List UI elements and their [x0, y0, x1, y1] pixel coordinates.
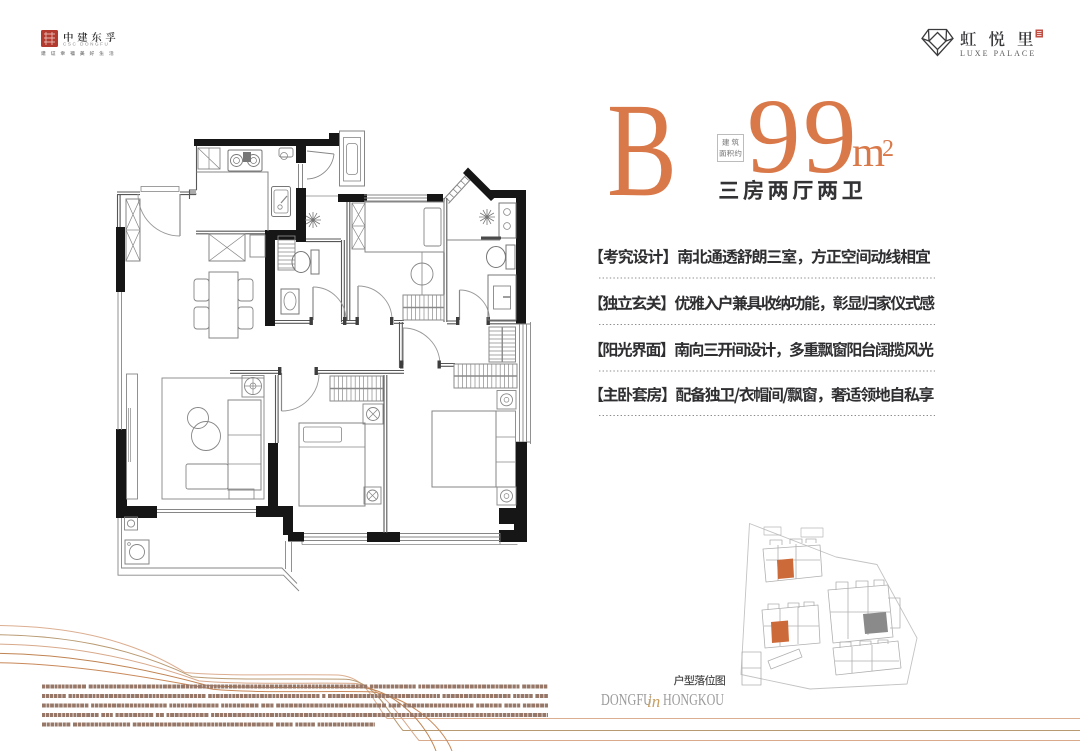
svg-text:2: 2 [882, 136, 894, 162]
svg-text:CSC DONGFU: CSC DONGFU [63, 42, 109, 47]
svg-text:m: m [852, 129, 885, 176]
svg-text:in: in [647, 692, 660, 711]
svg-text:B: B [607, 77, 677, 225]
svg-text:LUXE PALACE: LUXE PALACE [960, 49, 1036, 58]
svg-text:DONGFU: DONGFU [601, 690, 652, 709]
svg-text:HONGKOU: HONGKOU [663, 690, 724, 709]
